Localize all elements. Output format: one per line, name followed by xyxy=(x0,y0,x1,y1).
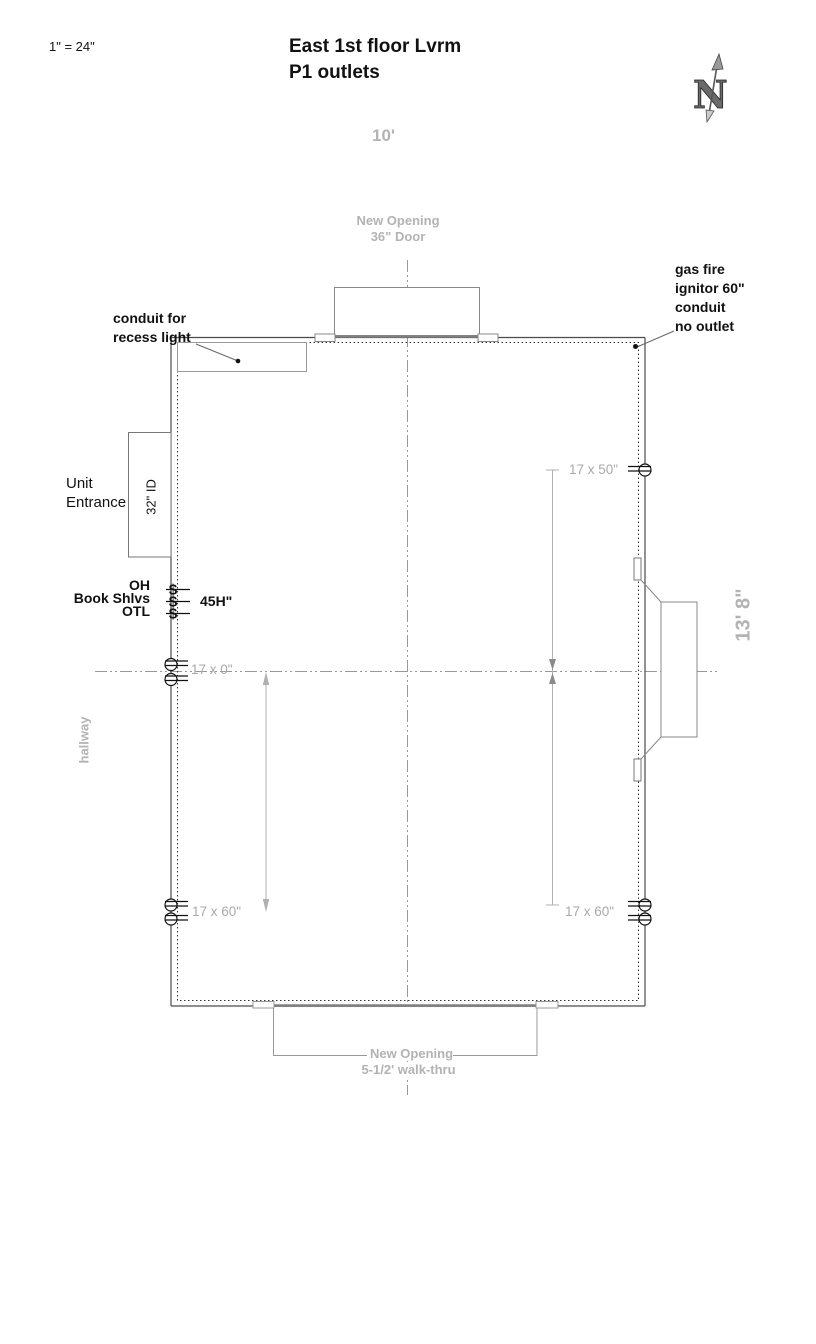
page-title: East 1st floor Lvrm P1 outlets xyxy=(289,34,461,86)
bottom-opening-label: New Opening 5-1/2' walk-thru xyxy=(325,1046,495,1078)
top-opening-jamb-left xyxy=(315,334,335,342)
floor-plan-drawing: $ $ $ xyxy=(0,0,816,1344)
unit-entrance-label: Unit Entrance xyxy=(66,474,126,512)
top-width-dimension: 10' xyxy=(372,126,395,146)
bottom-opening-jamb-right xyxy=(536,1002,558,1009)
outlet-lower-left-upper xyxy=(165,899,188,911)
fireplace-splay-top xyxy=(641,580,661,602)
entrance-width-label: 32" ID xyxy=(144,479,159,515)
hallway-label: hallway xyxy=(77,717,92,764)
outlet-upper-right xyxy=(628,464,651,476)
gas-fire-label: gas fire ignitor 60" conduit no outlet xyxy=(675,260,745,336)
shelf-height-label: 45H" xyxy=(200,593,232,609)
north-arrow-icon: N xyxy=(686,52,742,124)
recess-conduit-dot xyxy=(236,359,241,364)
outlet-dim-mid-left: 17 x 0" xyxy=(191,662,233,677)
outlet-mid-left-lower xyxy=(165,674,188,686)
left-dimension-arrow-up xyxy=(263,672,269,685)
right-dimension-arrow-down xyxy=(549,659,556,670)
left-dimension-arrow-down xyxy=(263,899,269,912)
outlet-mid-left-upper xyxy=(165,659,188,671)
fireplace-jamb-top xyxy=(634,558,641,580)
top-door-swing-box xyxy=(335,288,480,336)
outlet-lower-right-lower xyxy=(628,913,651,925)
fireplace-splay-bottom xyxy=(641,737,661,759)
book-shelves-label: OH Book Shlvs OTL xyxy=(58,579,150,618)
top-opening-label: New Opening 36" Door xyxy=(318,213,478,245)
outlet-dim-lower-left: 17 x 60" xyxy=(192,904,241,919)
outlet-dim-lower-right: 17 x 60" xyxy=(565,904,614,919)
compass-arrow-head xyxy=(712,54,723,70)
floor-plan-page: $ $ $ N 1" = 24" East 1st floor Lvrm P1 … xyxy=(0,0,816,1344)
recess-light-conduit-box xyxy=(178,343,307,372)
bottom-opening-jamb-left xyxy=(253,1002,274,1009)
right-height-dimension: 13' 8" xyxy=(733,588,756,641)
outlet-lower-right-upper xyxy=(628,899,651,911)
fireplace-firebox xyxy=(661,602,697,737)
bottom-opening-text: New Opening 5-1/2' walk-thru xyxy=(361,1046,458,1077)
scale-note: 1" = 24" xyxy=(49,39,95,54)
fireplace-jamb-bottom xyxy=(634,759,641,781)
top-opening-jamb-right xyxy=(478,334,498,342)
outlet-dim-upper-right: 17 x 50" xyxy=(569,462,618,477)
gas-fire-conduit-dot xyxy=(633,344,638,349)
recess-conduit-label: conduit for recess light xyxy=(113,309,191,347)
gas-fire-leader-line xyxy=(637,331,674,347)
right-dimension-arrow-up xyxy=(549,673,556,684)
outlet-lower-left-lower xyxy=(165,913,188,925)
